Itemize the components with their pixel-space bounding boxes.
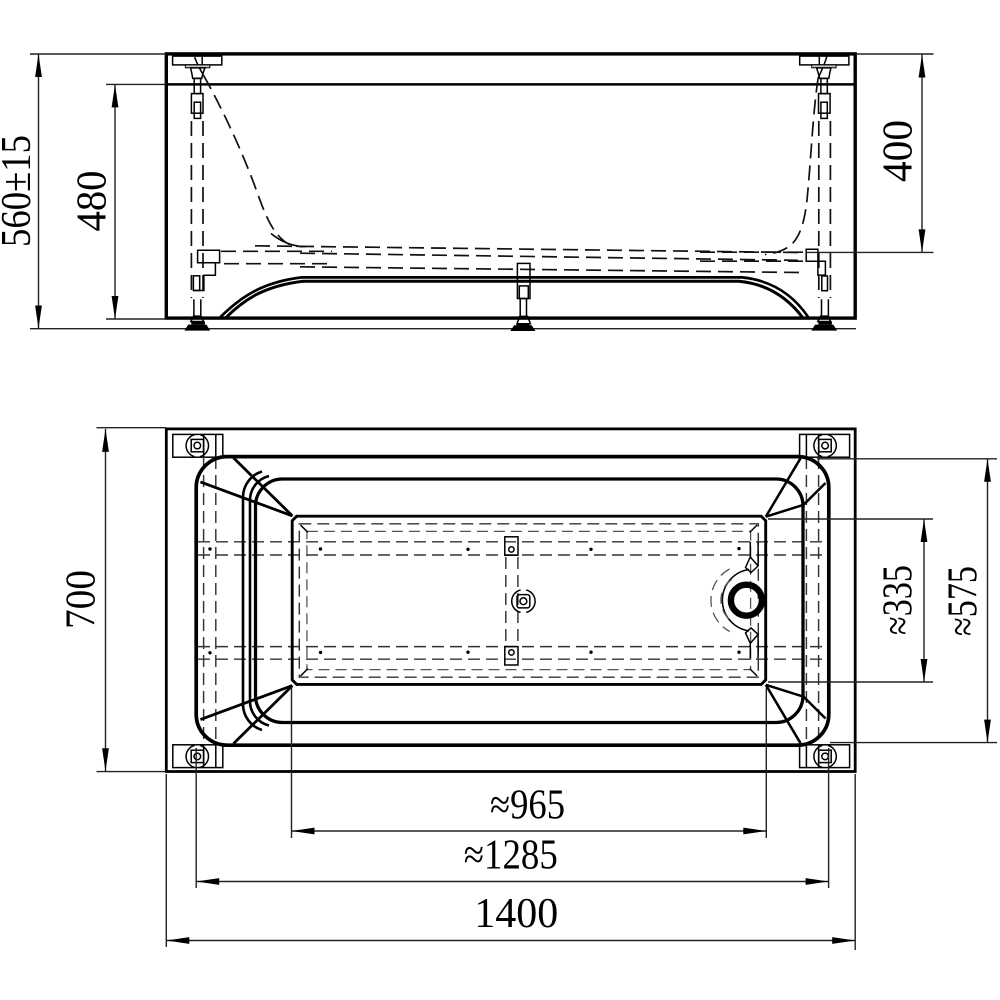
svg-text:1400: 1400 <box>474 891 558 937</box>
svg-text:≈575: ≈575 <box>940 566 986 636</box>
svg-text:480: 480 <box>70 171 116 232</box>
svg-text:≈965: ≈965 <box>490 783 565 829</box>
svg-text:400: 400 <box>876 120 922 182</box>
svg-text:≈1285: ≈1285 <box>464 833 558 879</box>
svg-text:560±15: 560±15 <box>0 135 40 247</box>
svg-text:700: 700 <box>59 570 105 629</box>
svg-text:≈335: ≈335 <box>875 565 921 635</box>
